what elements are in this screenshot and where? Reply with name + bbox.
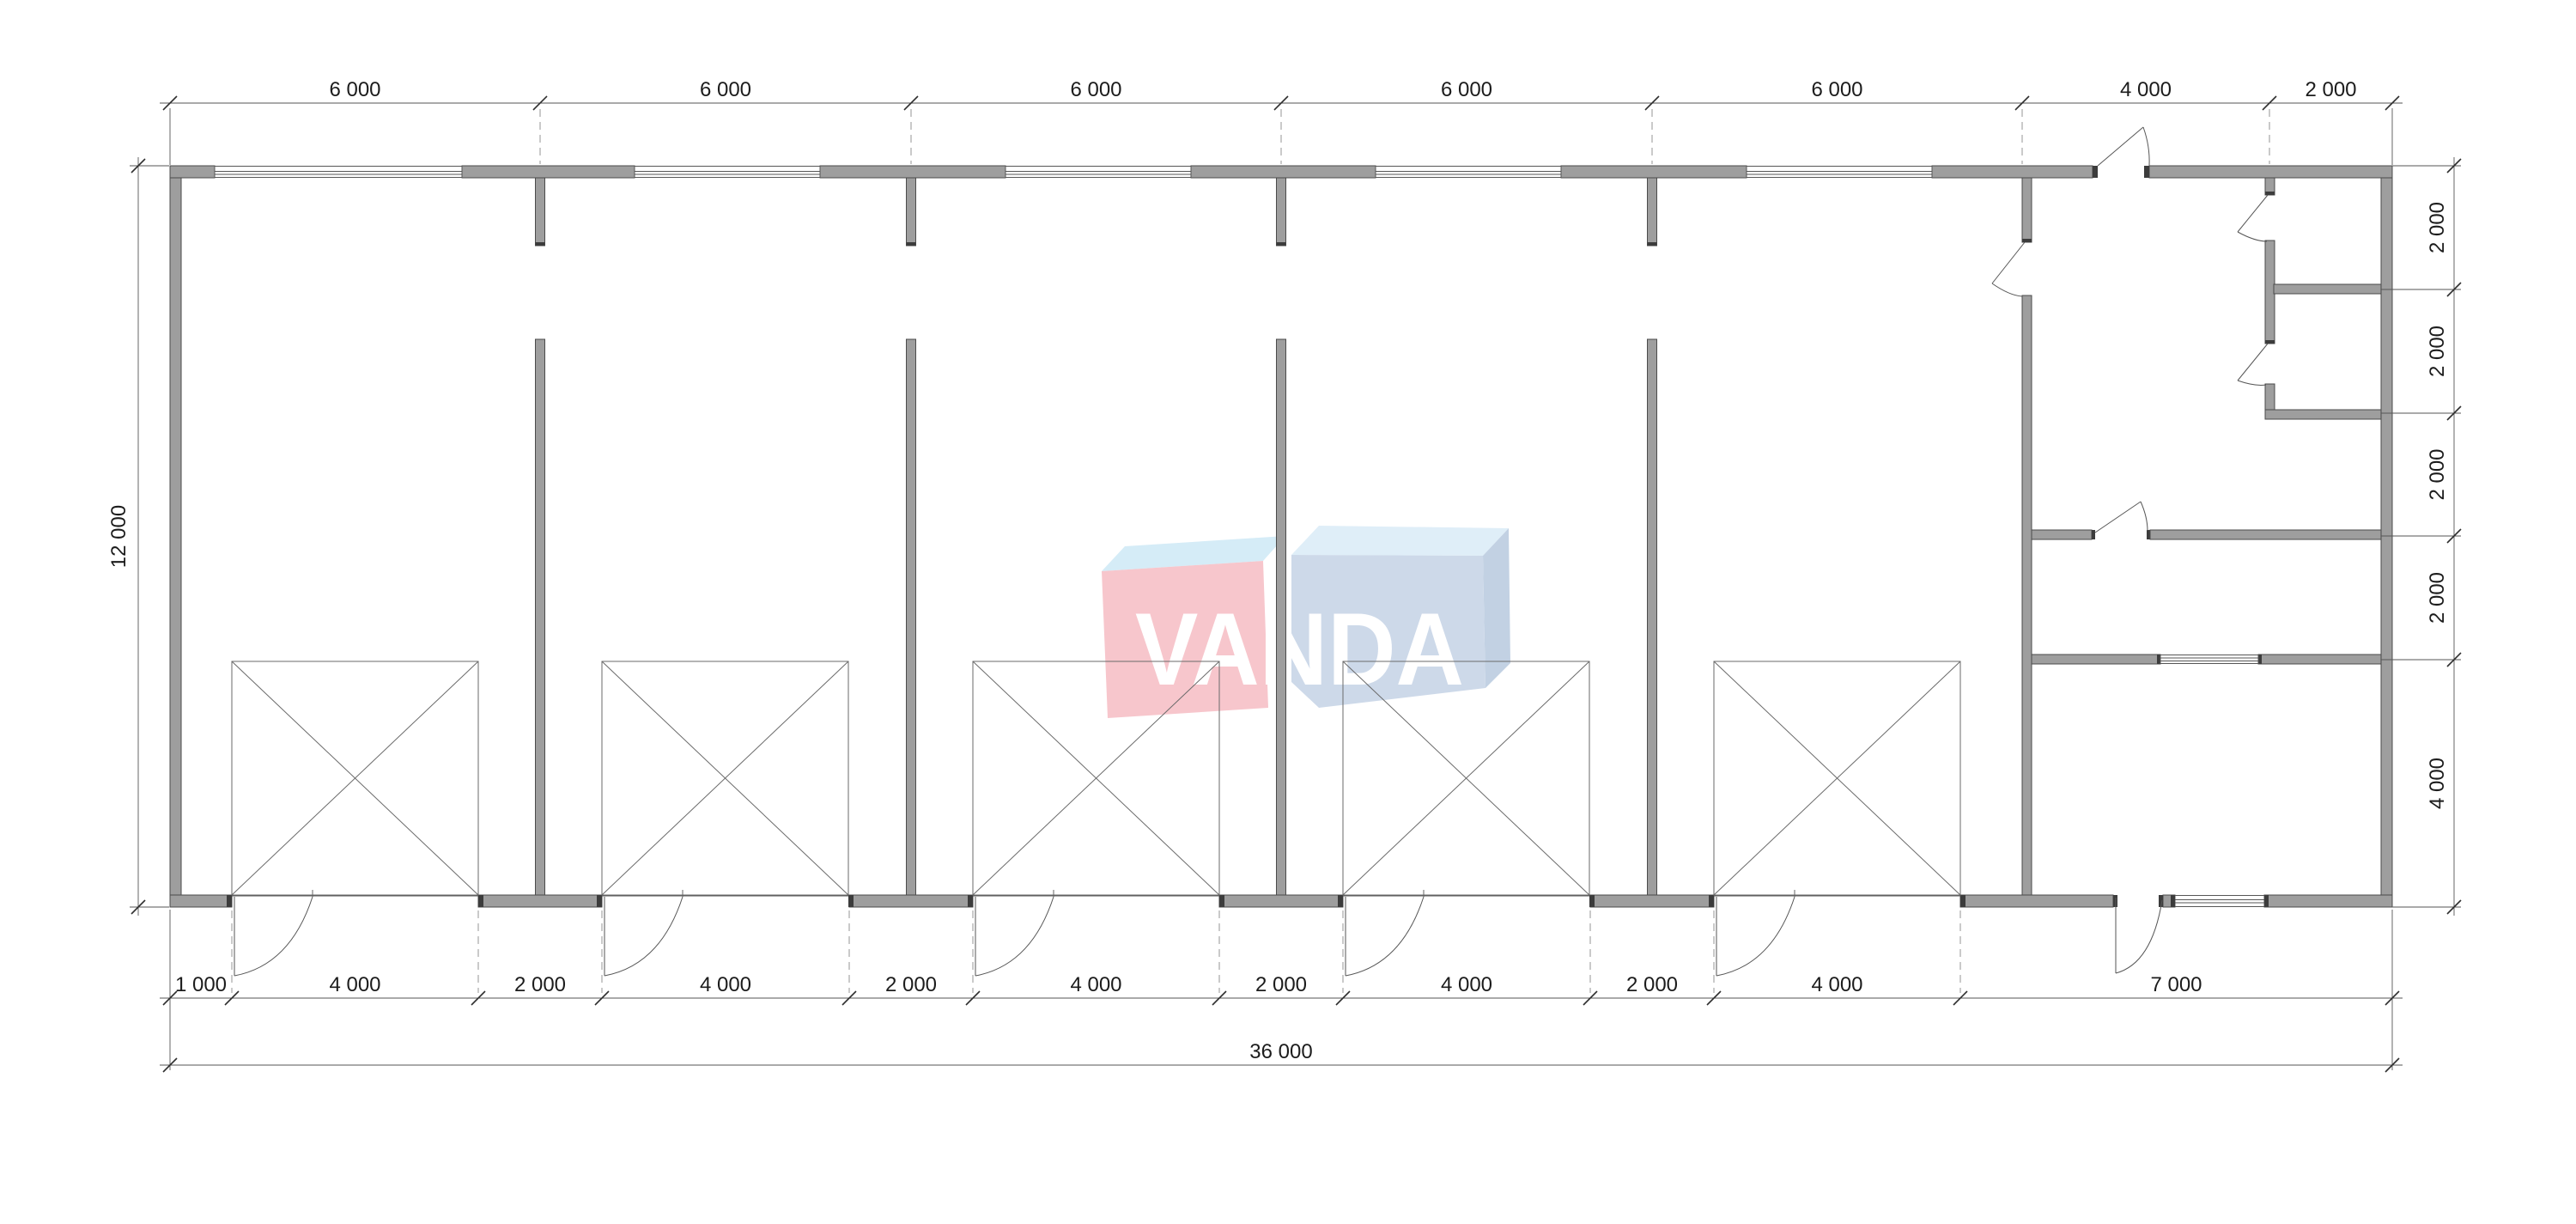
dimension-right: 2 000 2 000 2 000 2 000 4 000 — [2381, 157, 2461, 916]
wall-right — [2381, 166, 2392, 907]
dim-label: 2 000 — [2426, 572, 2449, 624]
dim-label: 2 000 — [2426, 202, 2449, 253]
window — [1747, 167, 1932, 178]
dimension-left: 12 000 — [107, 157, 169, 916]
garage-bay — [1709, 661, 1965, 976]
wall-bottom-segment — [1960, 895, 2113, 907]
garage-bay — [1338, 661, 1595, 976]
dim-label: 2 000 — [514, 973, 566, 996]
garage-bay — [597, 661, 854, 976]
partition-wall — [1277, 178, 1286, 895]
dim-label: 4 000 — [700, 973, 751, 996]
wall-bottom-segment — [170, 895, 232, 907]
dim-label: 4 000 — [1811, 973, 1862, 996]
room-divider — [2150, 530, 2381, 539]
wall-top-segment — [462, 166, 635, 178]
interior-window — [2160, 655, 2258, 664]
wall-top-segment — [1191, 166, 1376, 178]
dim-label: 6 000 — [1811, 78, 1862, 101]
dim-label: 6 000 — [329, 78, 380, 101]
door-swing — [2238, 381, 2266, 385]
door-swing — [2238, 232, 2267, 241]
entrance-door — [2093, 127, 2149, 178]
wall-bottom-segment — [2264, 895, 2392, 907]
door-leaf — [1992, 242, 2025, 283]
wall-bottom-segment — [849, 895, 973, 907]
dim-label: 4 000 — [1070, 973, 1121, 996]
floor-plan-canvas: VANDA — [0, 0, 2576, 1224]
dim-label-total: 36 000 — [1249, 1040, 1312, 1063]
window — [1005, 167, 1191, 178]
dim-label: 4 000 — [329, 973, 380, 996]
door-swing — [1992, 283, 2022, 296]
partition-wall — [536, 178, 545, 895]
logo-right-box-side — [1483, 528, 1510, 688]
wall-bottom-segment — [1219, 895, 1343, 907]
wall-top-segment — [820, 166, 1005, 178]
dim-label: 6 000 — [1070, 78, 1121, 101]
corridor-wall — [2022, 295, 2032, 895]
room-divider — [2032, 655, 2160, 664]
vanda-logo: VANDA — [1102, 526, 1510, 718]
logo-right-box-top — [1291, 526, 1509, 556]
corridor-wall — [2022, 178, 2032, 242]
door-leaf — [2095, 502, 2141, 533]
dim-label: 2 000 — [885, 973, 937, 996]
wall-bottom-segment — [478, 895, 602, 907]
dim-label: 6 000 — [700, 78, 751, 101]
room-divider — [2258, 655, 2381, 664]
wall-top-segment — [1561, 166, 1747, 178]
vanda-logo-text: VANDA — [1135, 592, 1464, 707]
door-swing — [2141, 502, 2148, 531]
dim-label: 2 000 — [1626, 973, 1678, 996]
dimension-top: 6 000 6 000 6 000 6 000 6 000 4 000 2 00… — [160, 78, 2403, 165]
dim-label: 2 000 — [1255, 973, 1307, 996]
window — [215, 167, 462, 178]
room-divider — [2032, 530, 2092, 539]
partition-wall — [907, 178, 916, 895]
wall-top-segment — [170, 166, 215, 178]
dimension-total: 36 000 — [160, 1040, 2403, 1072]
window — [1376, 167, 1561, 178]
rear-window — [2171, 895, 2269, 907]
wall-bottom-segment — [1590, 895, 1714, 907]
dim-label: 12 000 — [107, 505, 131, 568]
door-leaf — [2238, 195, 2268, 232]
wall-top-segment — [1932, 166, 2093, 178]
garage-bay — [227, 661, 483, 976]
rear-door — [2113, 895, 2163, 973]
dim-label: 2 000 — [2426, 448, 2449, 500]
dim-label: 1 000 — [175, 973, 227, 996]
dim-label: 2 000 — [2305, 78, 2356, 101]
dim-label: 6 000 — [1441, 78, 1492, 101]
office-section-walls — [1992, 178, 2381, 895]
floor-plan-drawing: VANDA — [0, 0, 2576, 1224]
door-leaf — [2238, 344, 2268, 381]
room-divider — [2274, 284, 2381, 294]
dim-label: 2 000 — [2426, 326, 2449, 377]
dim-label: 4 000 — [1441, 973, 1492, 996]
room-divider — [2265, 410, 2381, 419]
dim-label: 7 000 — [2150, 973, 2202, 996]
garage-bays — [227, 661, 1965, 976]
wall-top-segment — [2149, 166, 2392, 178]
window — [635, 167, 820, 178]
partition-wall — [1648, 178, 1657, 895]
wall-left — [170, 166, 181, 907]
dim-label: 4 000 — [2120, 78, 2172, 101]
dim-label: 4 000 — [2426, 758, 2449, 809]
